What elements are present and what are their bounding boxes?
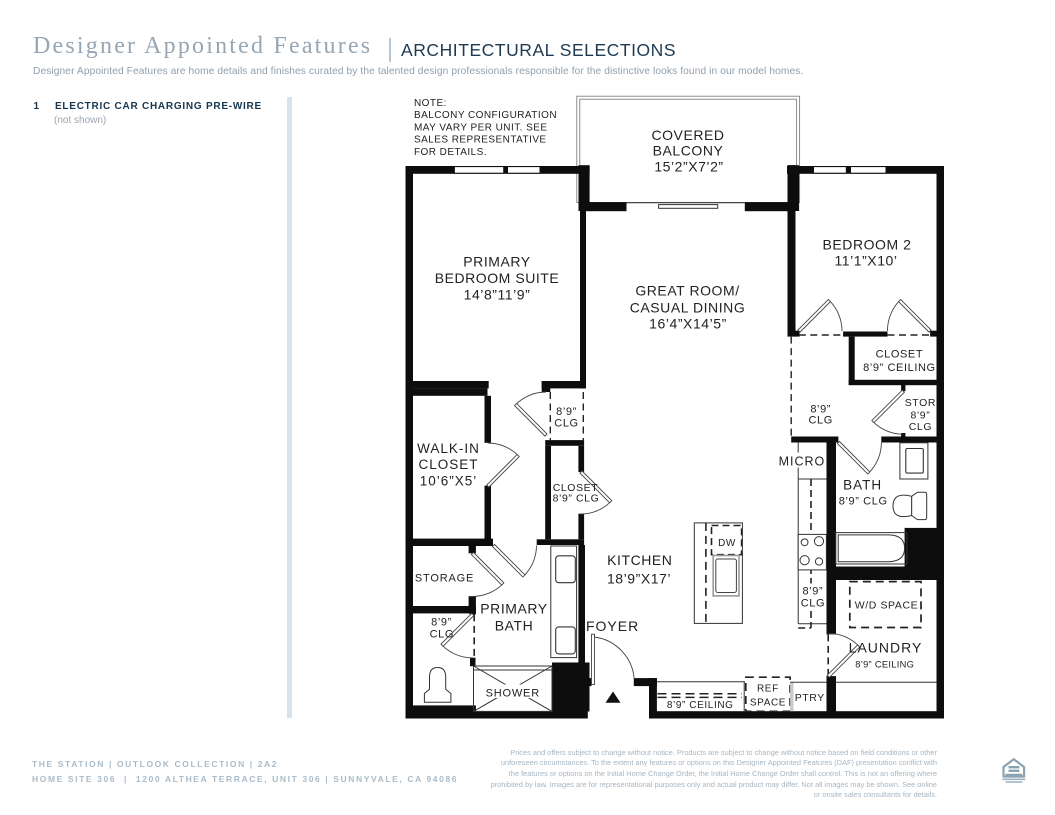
svg-text:SPACE: SPACE <box>750 698 786 709</box>
svg-text:BEDROOM SUITE: BEDROOM SUITE <box>435 270 560 286</box>
svg-text:8’9” CEILING: 8’9” CEILING <box>855 659 914 669</box>
svg-text:CLG: CLG <box>808 415 832 427</box>
svg-text:10’6”X5’: 10’6”X5’ <box>420 474 478 489</box>
svg-text:CLG: CLG <box>801 598 825 610</box>
svg-text:BALCONY CONFIGURATION: BALCONY CONFIGURATION <box>414 110 557 121</box>
svg-text:8’9” CEILING: 8’9” CEILING <box>667 700 734 711</box>
svg-text:PRIMARY: PRIMARY <box>480 600 547 616</box>
svg-text:BALCONY: BALCONY <box>653 143 724 159</box>
svg-text:KITCHEN: KITCHEN <box>607 552 672 568</box>
svg-text:SHOWER: SHOWER <box>486 688 540 700</box>
svg-text:8’9” CEILING: 8’9” CEILING <box>863 362 936 374</box>
svg-text:CLOSET: CLOSET <box>418 457 478 472</box>
svg-text:CLOSET: CLOSET <box>876 349 924 361</box>
svg-text:MAY VARY PER UNIT. SEE: MAY VARY PER UNIT. SEE <box>414 122 547 133</box>
svg-text:SALES REPRESENTATIVE: SALES REPRESENTATIVE <box>414 135 547 146</box>
svg-text:LAUNDRY: LAUNDRY <box>849 640 923 656</box>
svg-text:MICRO: MICRO <box>779 455 826 469</box>
svg-text:GREAT ROOM/: GREAT ROOM/ <box>635 282 739 298</box>
svg-text:DW: DW <box>718 538 736 549</box>
svg-text:8’9”: 8’9” <box>431 616 452 628</box>
svg-text:BATH: BATH <box>495 618 534 634</box>
svg-text:WALK-IN: WALK-IN <box>417 441 480 456</box>
svg-text:BEDROOM 2: BEDROOM 2 <box>823 237 912 253</box>
svg-text:STORAGE: STORAGE <box>415 573 474 585</box>
svg-text:CLG: CLG <box>430 628 454 640</box>
svg-text:W/D SPACE: W/D SPACE <box>855 600 919 612</box>
svg-text:18’9”X17’: 18’9”X17’ <box>607 571 671 587</box>
svg-text:FOR DETAILS.: FOR DETAILS. <box>414 147 487 158</box>
svg-text:CASUAL DINING: CASUAL DINING <box>630 300 746 316</box>
svg-text:11’1”X10’: 11’1”X10’ <box>834 253 897 269</box>
svg-text:BATH: BATH <box>843 477 882 492</box>
svg-text:PRIMARY: PRIMARY <box>463 253 530 269</box>
svg-text:16’4”X14’5”: 16’4”X14’5” <box>649 316 727 332</box>
svg-text:8’9”: 8’9” <box>810 403 831 415</box>
svg-text:8’9” CLG: 8’9” CLG <box>553 492 600 504</box>
svg-text:8’9”: 8’9” <box>556 406 577 418</box>
svg-text:FOYER: FOYER <box>586 618 639 634</box>
svg-text:8’9” CLG: 8’9” CLG <box>839 496 888 508</box>
svg-text:STOR: STOR <box>905 397 936 409</box>
svg-text:15’2”X7’2”: 15’2”X7’2” <box>654 159 723 175</box>
svg-text:8’9”: 8’9” <box>910 409 930 421</box>
svg-text:8’9”: 8’9” <box>803 586 824 598</box>
svg-text:NOTE:: NOTE: <box>414 98 447 109</box>
svg-text:CLG: CLG <box>554 418 578 430</box>
svg-text:REF: REF <box>757 684 779 695</box>
svg-text:CLG: CLG <box>909 421 932 433</box>
svg-text:PTRY: PTRY <box>795 692 825 704</box>
svg-text:14’8”11’9”: 14’8”11’9” <box>464 286 531 302</box>
svg-text:COVERED: COVERED <box>651 127 724 143</box>
